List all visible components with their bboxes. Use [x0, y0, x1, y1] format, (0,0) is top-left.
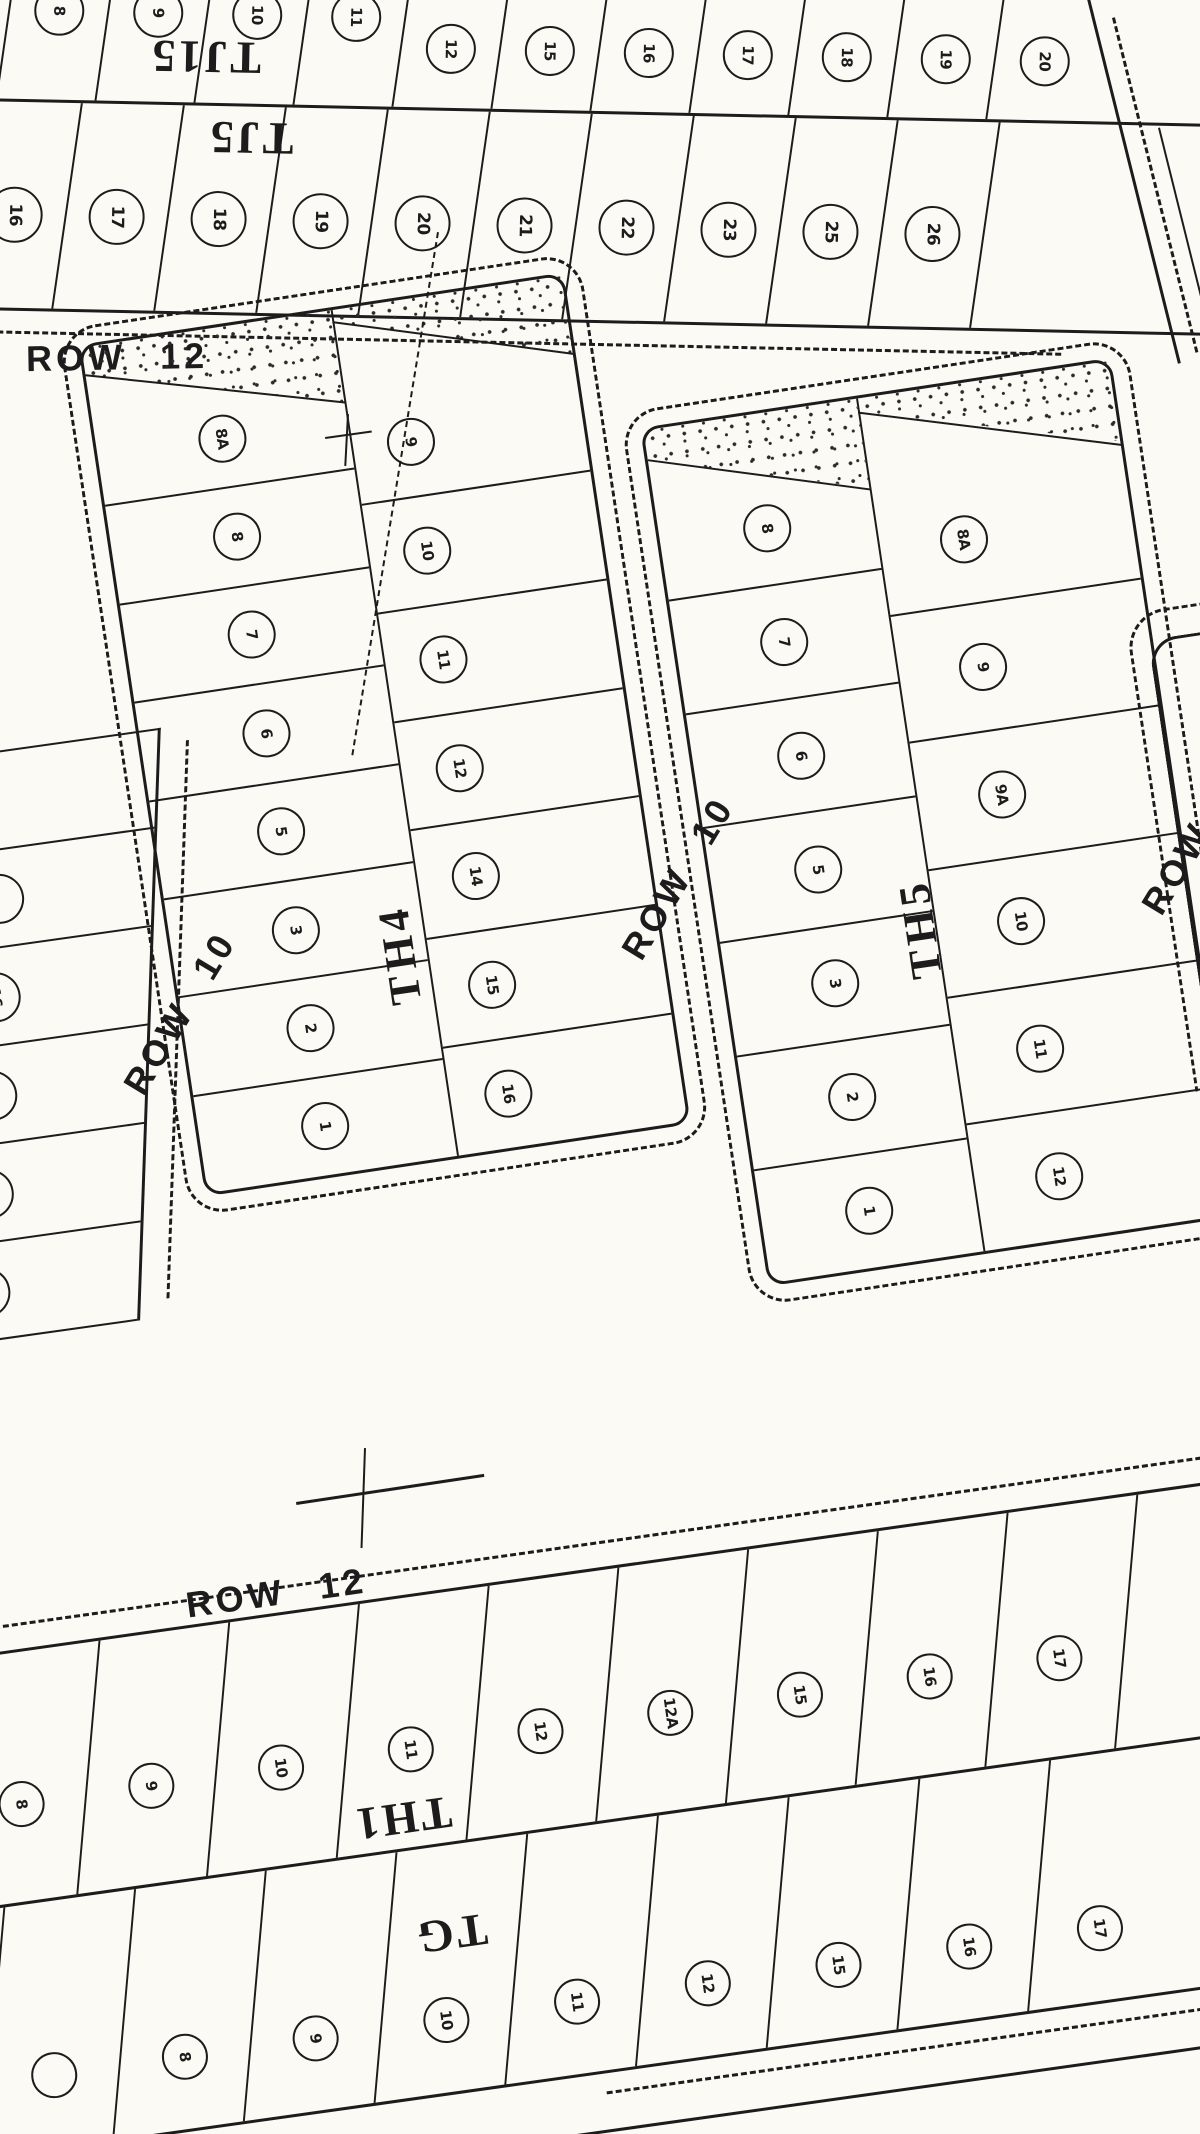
plot-number-circle: 18 — [190, 190, 247, 247]
plot-number-circle: 19 — [292, 193, 349, 250]
plot-number: 8 — [175, 2051, 194, 2063]
plot-number-circle: 9A — [975, 767, 1030, 822]
plot-number: 12 — [530, 1720, 551, 1742]
plot-number-circle: 11 — [330, 0, 381, 42]
plot-number-circle: 6 — [773, 728, 828, 783]
plot-number-circle: 11 — [1013, 1021, 1068, 1076]
plot-number-circle: 16 — [0, 186, 43, 243]
block-th1-tg: TH1 8 9 10 11 — [0, 1465, 1200, 2134]
plot-cell: 12 — [635, 1797, 788, 2066]
plot-number-circle: 2 — [283, 1001, 338, 1056]
plot-number: 9 — [306, 2032, 325, 2044]
plot-number-circle: 16 — [481, 1066, 536, 1121]
plot-number: 18 — [837, 47, 855, 67]
plot-number-circle: 23 — [700, 201, 757, 258]
plot-number: 11 — [433, 648, 454, 670]
plot-number-circle: 15 — [524, 25, 575, 76]
plot-number-circle: 8A — [195, 411, 250, 466]
plot-number-circle: 26 — [904, 205, 961, 262]
plot-number-circle: 18 — [0, 1165, 17, 1221]
plot-number-circle: 17 — [1074, 1902, 1126, 1954]
plot-number: 1 — [859, 1205, 878, 1217]
plot-number-circle: 7 — [756, 615, 811, 670]
plot-number-circle: 12 — [1032, 1149, 1087, 1204]
plot-number-circle: 11 — [551, 1976, 603, 2028]
plot-cell: 15 — [766, 1779, 919, 2048]
plot-number-circle: 12 — [514, 1705, 566, 1757]
plot-number: 16 — [4, 203, 24, 226]
plot-cell: 16 — [896, 1761, 1049, 2030]
plot-number: 1 — [316, 1120, 335, 1132]
plot-number-circle: 9 — [384, 414, 439, 469]
plot-number-circle: 3 — [807, 956, 862, 1011]
plot-number-circle: 5 — [790, 842, 845, 897]
plot-number: 11 — [347, 7, 365, 27]
plot-number: 10 — [270, 1757, 291, 1779]
block-label-tj5: TJ5 — [155, 110, 346, 167]
plot-number-circle: 15 — [813, 1939, 865, 1991]
plot-number: 21 — [514, 214, 534, 237]
plot-number: 16 — [0, 986, 6, 1008]
plot-number-circle: 12 — [425, 23, 476, 74]
plot-number-circle: 19 — [920, 34, 971, 85]
plot-number-circle: 3 — [269, 903, 324, 958]
plot-number: 2 — [301, 1022, 320, 1034]
plot-number: 8A — [954, 528, 975, 551]
plot-cell: 11 — [336, 1586, 488, 1858]
plot-number-circle: 7 — [224, 608, 279, 663]
plot-number: 9 — [149, 8, 167, 18]
plot-number: 9 — [973, 661, 992, 673]
plot-number-circle: 18 — [821, 32, 872, 83]
plot-number: 2 — [842, 1091, 861, 1103]
survey-cross-mark — [361, 1448, 366, 1548]
plot-number-circle — [28, 2049, 80, 2101]
plot-number-circle: 2 — [824, 1070, 879, 1125]
plot-number: 25 — [820, 220, 840, 243]
plot-number: 26 — [922, 222, 942, 245]
plot-number: 8 — [50, 6, 68, 16]
plot-cell: 19 — [0, 1222, 141, 1380]
plot-number: 20 — [1035, 51, 1053, 71]
plot-number-circle: 16 — [0, 969, 24, 1025]
plot-number-circle: 8 — [33, 0, 84, 36]
plot-number: 19 — [310, 210, 330, 233]
plot-cell: 17 — [1027, 1742, 1180, 2011]
plot-number: 10 — [1011, 910, 1032, 932]
plot-number: 16 — [959, 1935, 980, 1957]
plot-number-circle: 12 — [432, 740, 487, 795]
plot-number: 8 — [757, 522, 776, 534]
plot-number-circle: 11 — [384, 1723, 436, 1775]
plot-cell: 8 — [112, 1871, 265, 2134]
plot-number: 16 — [919, 1665, 940, 1687]
plot-number-circle: 16 — [943, 1921, 995, 1973]
plot-cell: 15 — [725, 1531, 877, 1803]
plot-number-circle: 10 — [400, 523, 455, 578]
plot-number-circle: 8 — [210, 509, 265, 564]
plot-number: 9A — [992, 782, 1013, 805]
plot-cell: 17 — [984, 1495, 1136, 1767]
plot-number: 17 — [0, 1084, 3, 1106]
plot-number: 7 — [774, 636, 793, 648]
block-tj15-tj5: 8 9 10 11 12 — [0, 0, 1200, 336]
plot-cell: 12 — [465, 1568, 617, 1840]
plot-number-circle: 16 — [623, 28, 674, 79]
plot-number-circle: 9 — [956, 640, 1011, 695]
plot-cell: 16 — [855, 1513, 1007, 1785]
plot-number: 12 — [698, 1972, 719, 1994]
plot-cell: 10 — [206, 1604, 358, 1876]
plot-number: 3 — [825, 977, 844, 989]
plot-number: 19 — [936, 49, 954, 69]
plot-number: 8 — [227, 530, 246, 542]
plot-number-circle: 11 — [416, 632, 471, 687]
plot-number-circle — [0, 870, 27, 926]
plot-number-circle: 17 — [88, 188, 145, 245]
plot-number-circle: 8 — [159, 2031, 211, 2083]
plot-cell — [0, 1889, 134, 2134]
plot-number-circle: 15 — [773, 1669, 825, 1721]
plot-cell: 11 — [504, 1816, 657, 2085]
plot-number: 10 — [248, 5, 266, 25]
plot-number: 23 — [718, 218, 738, 241]
plat-map-canvas: 8 9 10 11 12 — [0, 0, 1200, 2134]
plot-number-circle: 10 — [420, 1994, 472, 2046]
plot-number: 9 — [141, 1780, 160, 1792]
plot-number: 7 — [242, 629, 261, 641]
plot-number: 14 — [466, 865, 487, 887]
plot-number: 11 — [1030, 1038, 1051, 1060]
plot-number-circle: 14 — [449, 849, 504, 904]
plot-number-circle: 6 — [239, 706, 294, 761]
plot-number: 15 — [540, 41, 558, 61]
plot-number-circle: 10 — [255, 1742, 307, 1794]
plot-number: 17 — [1049, 1647, 1070, 1669]
plot-number-circle: 9 — [290, 2012, 342, 2064]
plot-number-circle: 21 — [496, 197, 553, 254]
plot-number-circle: 20 — [1019, 36, 1070, 87]
plot-number: 17 — [738, 45, 756, 65]
plot-number: 5 — [808, 863, 827, 875]
plot-number: 5 — [272, 825, 291, 837]
plot-number-circle: 19 — [0, 1264, 14, 1320]
plot-number-circle: 5 — [254, 804, 309, 859]
plot-number: 15 — [828, 1954, 849, 1976]
plot-number: 6 — [791, 749, 810, 761]
plot-number-circle: 17 — [1033, 1632, 1085, 1684]
plot-number-circle: 8 — [0, 1778, 47, 1830]
plot-cell: 9 — [243, 1852, 396, 2121]
plot-number-circle: 15 — [465, 958, 520, 1013]
plot-number: 8A — [212, 427, 233, 450]
plot-number-circle: 17 — [722, 30, 773, 81]
plot-number-circle: 12A — [644, 1687, 696, 1739]
plot-number: 15 — [789, 1684, 810, 1706]
plot-number: 11 — [567, 1991, 588, 2013]
plot-number: 16 — [498, 1083, 519, 1105]
plot-number: 20 — [412, 212, 432, 235]
plot-number-circle: 1 — [298, 1099, 353, 1154]
block-label-tj15: TJ15 — [117, 29, 294, 86]
plot-number-circle: 1 — [841, 1184, 896, 1239]
plot-number-circle: 25 — [802, 203, 859, 260]
plot-number-circle: 22 — [598, 199, 655, 256]
plot-number: 16 — [639, 43, 657, 63]
plot-number: 3 — [286, 924, 305, 936]
plot-number: 18 — [208, 208, 228, 231]
plot-cell: 10 — [374, 1834, 527, 2103]
plot-number-circle: 9 — [125, 1760, 177, 1812]
plot-number: 15 — [482, 974, 503, 996]
plot-number: 17 — [1090, 1917, 1111, 1939]
plot-number-circle: 16 — [903, 1651, 955, 1703]
plot-number: 11 — [400, 1738, 421, 1760]
plot-number: 22 — [616, 216, 636, 239]
plot-number-circle: 12 — [682, 1957, 734, 2009]
plot-number: 12A — [659, 1696, 681, 1729]
plot-cell: 9 — [76, 1623, 228, 1895]
plot-number: 10 — [436, 2009, 457, 2031]
plot-number: 10 — [417, 539, 438, 561]
plot-number: 12 — [441, 39, 459, 59]
plot-number-circle: 8 — [739, 501, 794, 556]
plot-number-circle: 10 — [994, 894, 1049, 949]
plot-number: 12 — [449, 757, 470, 779]
plot-number-circle: 17 — [0, 1067, 20, 1123]
plot-number: 6 — [257, 727, 276, 739]
plot-number: 8 — [12, 1798, 31, 1810]
plot-number: 12 — [1049, 1165, 1070, 1187]
survey-cross-mark — [296, 1474, 484, 1505]
plot-number-circle: 20 — [394, 195, 451, 252]
plot-cell: 12A — [595, 1550, 747, 1822]
plot-number-circle: 8A — [937, 512, 992, 567]
plot-number: 17 — [106, 205, 126, 228]
